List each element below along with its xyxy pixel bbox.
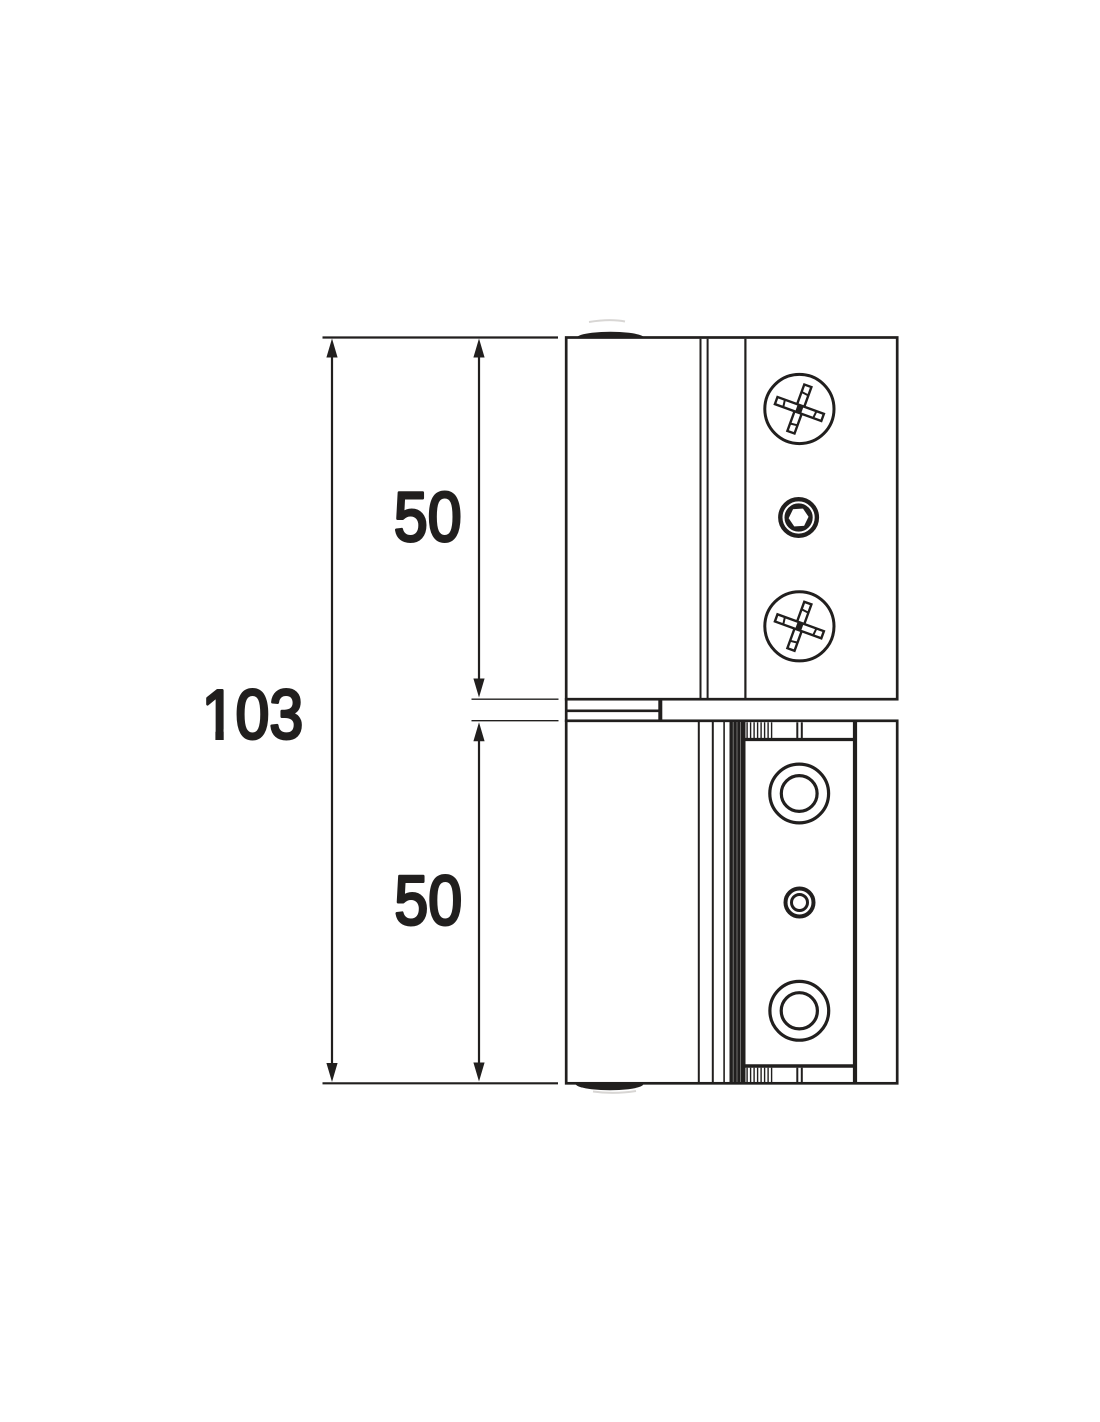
svg-text:50: 50 (394, 478, 462, 556)
svg-text:50: 50 (394, 862, 462, 940)
svg-text:103: 103 (202, 676, 304, 754)
